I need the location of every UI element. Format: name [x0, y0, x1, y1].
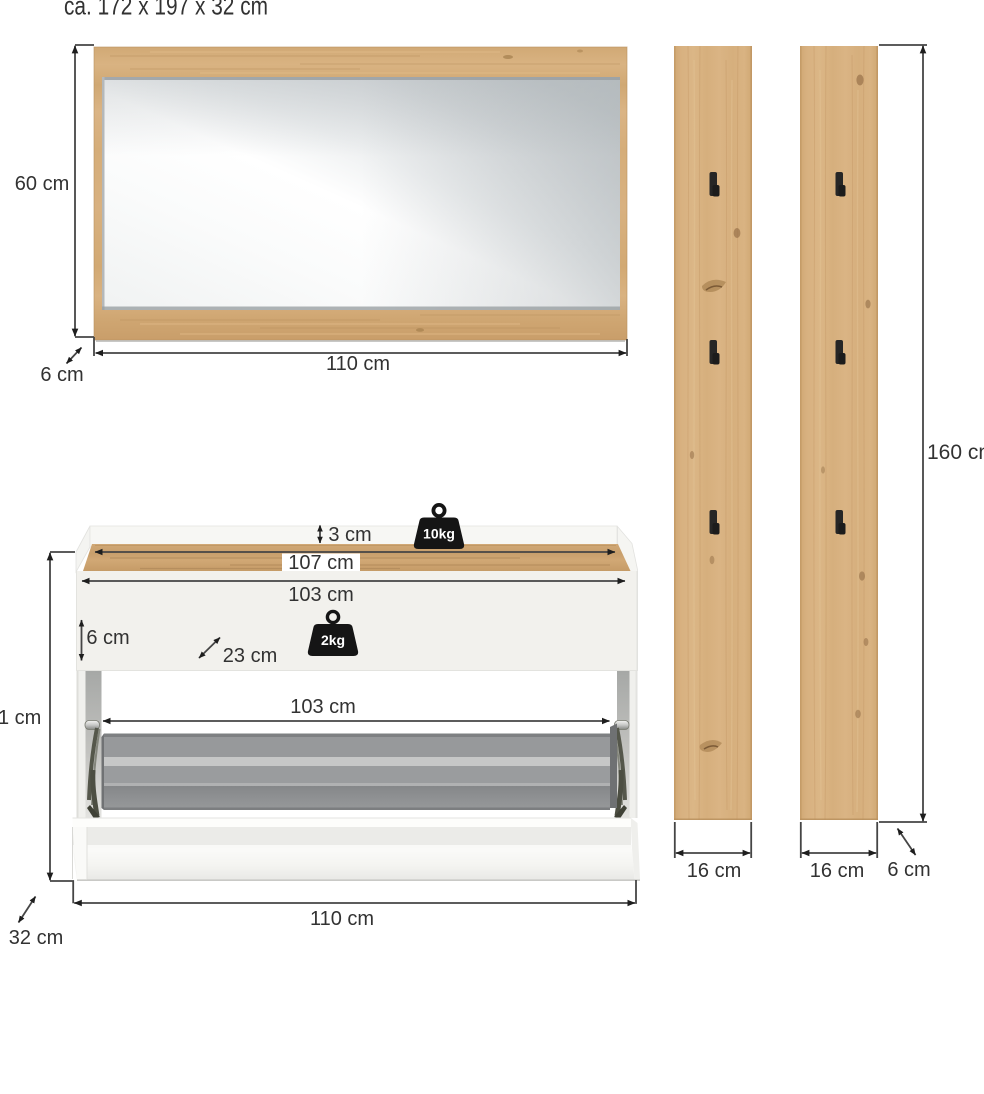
svg-text:2kg: 2kg: [321, 632, 345, 648]
svg-text:16 cm: 16 cm: [810, 860, 864, 882]
svg-text:103 cm: 103 cm: [290, 696, 356, 718]
svg-text:160 cm: 160 cm: [927, 441, 984, 464]
svg-text:103 cm: 103 cm: [288, 584, 354, 606]
svg-text:16 cm: 16 cm: [687, 860, 741, 882]
svg-text:6 cm: 6 cm: [40, 364, 83, 386]
svg-text:10kg: 10kg: [423, 526, 455, 542]
svg-text:107 cm: 107 cm: [288, 552, 354, 574]
svg-text:ca. 172 x 197 x 32 cm: ca. 172 x 197 x 32 cm: [64, 0, 268, 21]
svg-text:110 cm: 110 cm: [310, 908, 374, 930]
svg-text:110 cm: 110 cm: [326, 353, 390, 375]
svg-text:32 cm: 32 cm: [9, 927, 63, 949]
svg-text:1 cm: 1 cm: [0, 707, 41, 729]
svg-text:6 cm: 6 cm: [86, 627, 129, 649]
svg-text:60 cm: 60 cm: [15, 173, 69, 195]
svg-text:23 cm: 23 cm: [223, 645, 277, 667]
svg-text:6 cm: 6 cm: [887, 859, 930, 881]
svg-text:3 cm: 3 cm: [328, 524, 371, 546]
